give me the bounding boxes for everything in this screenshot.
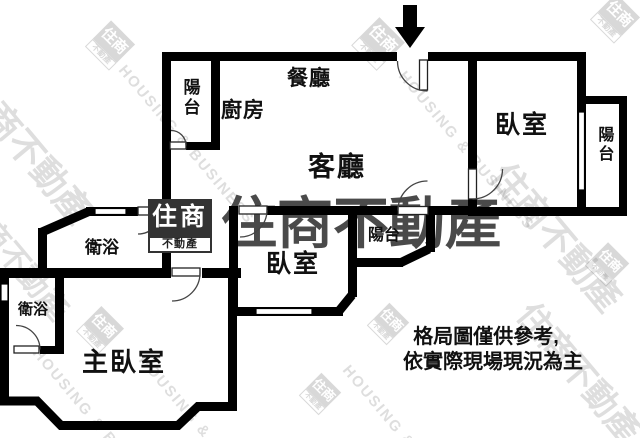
entrance-arrow-icon [395, 5, 425, 48]
room-label-living: 客廳 [277, 152, 397, 183]
door-leaf [239, 206, 267, 214]
room-label-balcony-middle: 陽台 [344, 227, 424, 245]
room-label-bedroom-top-right: 臥室 [462, 111, 582, 140]
wall-segment [619, 96, 627, 216]
wall-segment [162, 52, 397, 61]
wall-segment [428, 52, 585, 61]
window [256, 309, 312, 315]
room-label-kitchen: 廚房 [203, 99, 283, 123]
room-label-balcony-right: 陽台 [594, 126, 612, 164]
wall-segment [468, 207, 627, 216]
door-leaf [469, 169, 477, 199]
door-leaf [420, 60, 428, 90]
door-balcony-top-left [170, 131, 186, 150]
door-balcony-middle [398, 181, 428, 215]
wall-segment [0, 268, 170, 278]
watermark-logo-bottom-text: 不動產 [148, 236, 212, 253]
door-bedroom-right [469, 169, 503, 199]
door-bathroom-small [14, 326, 40, 354]
window [95, 209, 126, 215]
door-leaf [172, 268, 200, 276]
wall-segment [400, 249, 429, 263]
room-label-master-bedroom: 主臥室 [44, 348, 204, 378]
floorplan-image: 住商不動產 住商不動產 HOUSING & BUSINESS HOUSING &… [0, 0, 640, 438]
room-label-bathroom-small: 衛浴 [3, 301, 63, 318]
window [1, 284, 8, 301]
room-label-dining: 餐廳 [269, 67, 349, 91]
door-entrance [398, 60, 428, 91]
wall-segment [42, 211, 90, 232]
room-label-bathroom-top: 衛浴 [62, 238, 142, 258]
door-leaf [398, 207, 428, 215]
wall-segment [353, 258, 403, 267]
door-leaf [14, 346, 39, 353]
watermark-logo-top-text: 住商 [148, 199, 212, 236]
room-label-balcony-top-left: 陽台 [180, 78, 200, 118]
door-master-bedroom [172, 268, 200, 301]
door-leaf [170, 142, 186, 149]
room-label-bedroom-middle: 臥室 [233, 250, 353, 279]
door-bedroom-middle [239, 206, 267, 237]
wall-segment [266, 206, 398, 215]
door-swing-arc [172, 273, 200, 301]
disclaimer-line-2: 依實際現場現況為主 [373, 345, 613, 374]
wall-segment [186, 142, 220, 150]
watermark-logo-center: 住商 不動產 [148, 199, 212, 253]
